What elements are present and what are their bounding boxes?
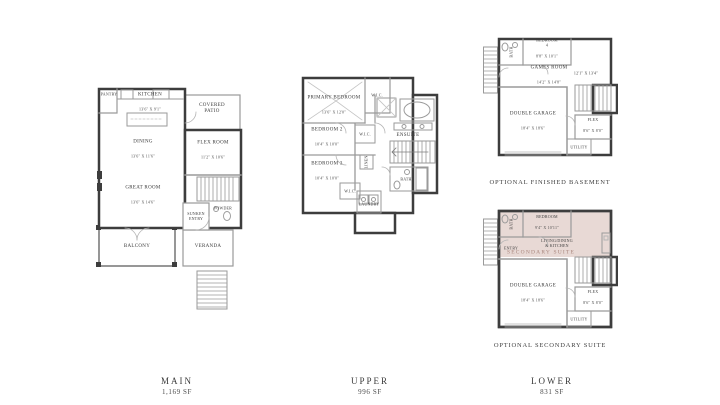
label-linen: LINEN: [364, 156, 369, 169]
floor-name: MAIN: [107, 376, 247, 386]
room-name: BEDROOM 2: [311, 128, 342, 134]
room-name: BEDROOM 3: [311, 162, 342, 168]
label-basement-utility: UTILITY: [570, 145, 587, 150]
room-dims: 8'8" X 10'1": [536, 54, 558, 59]
label-suite-flex: FLEX 8'6" X 8'0": [583, 284, 603, 310]
floor-area: 996 SF: [300, 388, 440, 396]
label-pantry: PANTRY: [101, 92, 118, 97]
room-name: FLEX: [583, 117, 603, 122]
room-name: DOUBLE GARAGE: [510, 112, 556, 118]
room-name: W.I.C.: [371, 93, 383, 98]
room-dims: 10'4" X 10'0": [311, 175, 342, 180]
room-name: LINEN: [364, 156, 369, 169]
room-name: ENSUITE: [397, 133, 420, 139]
label-secondary-suite: SECONDARY SUITE: [507, 250, 575, 257]
label-living-dining-kitchen: LIVING/DINING & KITCHEN: [541, 238, 573, 248]
room-name: KITCHEN: [138, 93, 162, 99]
exterior-stairwell: [484, 47, 498, 93]
floorplan-upper: PRIMARY BEDROOM 13'6" X 12'0" W.I.C. ENS…: [300, 75, 440, 240]
room-name: BATH: [509, 46, 514, 57]
room-dims: 8'6" X 8'0": [583, 128, 603, 133]
floor-name: UPPER: [300, 376, 440, 386]
label-games-dims-right: 12'1" X 13'4": [574, 71, 598, 76]
label-veranda: VERANDA: [195, 244, 222, 250]
label-covered-patio: COVERED PATIO: [199, 103, 225, 116]
room-name: PRIMARY BEDROOM: [307, 96, 360, 102]
exterior-stairwell: [484, 219, 498, 265]
room-dims: 10'4" X 10'0": [311, 141, 342, 146]
label-sunken-entry: SUNKEN ENTRY: [187, 211, 204, 221]
label-laundry: LAUNDRY: [359, 202, 380, 207]
room-name: FLEX ROOM: [197, 141, 228, 147]
floor-name: LOWER: [482, 376, 622, 386]
room-dims: 18'4" X 18'6": [510, 297, 556, 302]
page: { "colors": { "wall": "#3d3d3d", "suite_…: [0, 0, 720, 405]
label-suite-garage: DOUBLE GARAGE 18'4" X 18'6": [510, 278, 556, 309]
room-dims: 13'6" X 14'6": [125, 199, 160, 204]
room-name: BATH: [509, 218, 514, 229]
floorplan-main: PANTRY KITCHEN 13'6" X 9'1" COVERED PATI…: [95, 75, 245, 315]
label-powder: POWDER: [214, 206, 232, 211]
room-dims: 18'4" X 18'6": [510, 125, 556, 130]
room-name: LAUNDRY: [359, 202, 380, 207]
room-name: BEDROOM: [535, 214, 559, 219]
room-dims: 9'4" X 10'11": [535, 225, 559, 230]
label-suite-bath: BATH: [509, 218, 514, 229]
room-name: VERANDA: [195, 244, 222, 250]
room-name: BATH: [400, 177, 411, 182]
label-bedroom2: BEDROOM 2 10'4" X 10'0": [311, 122, 342, 153]
label-wic-3: W.I.C.: [344, 189, 356, 194]
upper-bottom-bump: [355, 213, 395, 233]
label-wic-1: W.I.C.: [371, 93, 383, 98]
label-games-room: GAMES ROOM 14'2" X 14'8": [531, 60, 568, 91]
label-flex-room: FLEX ROOM 11'2" X 10'6": [197, 135, 228, 166]
suite-caption: OPTIONAL SECONDARY SUITE: [494, 342, 606, 349]
label-basement-bath: BATH: [509, 46, 514, 57]
room-name: FLEX: [583, 289, 603, 294]
room-dims: 11'2" X 10'6": [197, 154, 228, 159]
room-name: UTILITY: [570, 317, 587, 322]
floor-area: 1,169 SF: [107, 388, 247, 396]
room-name: COVERED PATIO: [199, 103, 225, 116]
label-balcony: BALCONY: [124, 244, 150, 250]
room-dims: 13'6" X 11'6": [131, 153, 155, 158]
room-name: BALCONY: [124, 244, 150, 250]
label-dining: DINING 13'6" X 11'6": [131, 134, 155, 165]
label-primary-bedroom: PRIMARY BEDROOM 13'6" X 12'0": [307, 90, 360, 121]
floor-area: 831 SF: [482, 388, 622, 396]
exterior-stairs: [197, 271, 227, 309]
footer-main: MAIN 1,169 SF: [107, 376, 247, 396]
label-wic-2: W.I.C.: [359, 132, 371, 137]
room-name: LIVING/DINING & KITCHEN: [541, 238, 573, 248]
room-name: GREAT ROOM: [125, 186, 160, 192]
label-suite-utility: UTILITY: [570, 317, 587, 322]
stair-bump-walls: [593, 257, 617, 285]
room-name: BEDROOM 4: [536, 38, 558, 48]
upper-right-walls: [413, 95, 437, 193]
label-bedroom3: BEDROOM 3 10'4" X 10'0": [311, 156, 342, 187]
floorplan-basement-option: BATH BEDROOM 4 8'8" X 10'1" GAMES ROOM 1…: [483, 33, 618, 193]
label-bath: BATH: [400, 177, 411, 182]
room-name: UTILITY: [570, 145, 587, 150]
footer-lower: LOWER 831 SF: [482, 376, 622, 396]
label-ensuite: ENSUITE: [397, 133, 420, 139]
room-name: GAMES ROOM: [531, 66, 568, 72]
room-name: W.I.C.: [344, 189, 356, 194]
room-dims: 13'6" X 12'0": [307, 109, 360, 114]
room-name: SUNKEN ENTRY: [187, 211, 204, 221]
footer-upper: UPPER 996 SF: [300, 376, 440, 396]
room-dims: 12'1" X 13'4": [574, 71, 598, 76]
room-dims: 8'6" X 8'0": [583, 300, 603, 305]
label-great-room: GREAT ROOM 13'6" X 14'6": [125, 180, 160, 211]
label-suite-bedroom: BEDROOM 9'4" X 10'11": [535, 209, 559, 235]
room-name: W.I.C.: [359, 132, 371, 137]
room-dims: 13'6" X 9'1": [138, 106, 162, 111]
stair-bump-walls: [593, 85, 617, 113]
room-name: SECONDARY SUITE: [507, 250, 575, 257]
label-double-garage: DOUBLE GARAGE 18'4" X 18'6": [510, 106, 556, 137]
label-kitchen: KITCHEN 13'6" X 9'1": [138, 87, 162, 118]
room-name: POWDER: [214, 206, 232, 211]
room-name: PANTRY: [101, 92, 118, 97]
basement-caption: OPTIONAL FINISHED BASEMENT: [490, 179, 611, 186]
room-name: DOUBLE GARAGE: [510, 284, 556, 290]
label-basement-flex: FLEX 8'6" X 8'0": [583, 112, 603, 138]
room-name: DINING: [131, 140, 155, 146]
room-dims: 14'2" X 14'8": [531, 79, 568, 84]
floorplan-suite-option: BATH ENTRY BEDROOM 9'4" X 10'11" LIVING/…: [483, 205, 618, 365]
